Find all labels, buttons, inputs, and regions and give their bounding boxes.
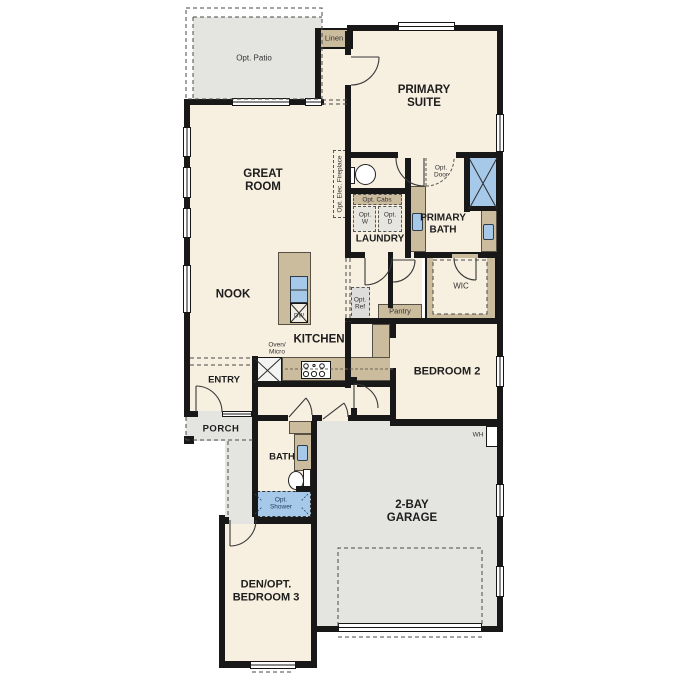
floor-plan: Opt. Patio Linen PRIMARY SUITE GREAT ROO… bbox=[0, 0, 687, 687]
wc-door-arc bbox=[396, 158, 424, 186]
bath-door-leaf bbox=[289, 398, 306, 417]
label-oven-micro: Oven/ Micro bbox=[261, 342, 293, 357]
label-opt-w: Opt. W bbox=[357, 212, 373, 227]
laundry-door-arc bbox=[365, 258, 392, 285]
label-porch: PORCH bbox=[203, 425, 240, 436]
label-dw: DW bbox=[294, 314, 304, 321]
label-opt-cabs: Opt. Cabs bbox=[362, 196, 391, 203]
oven-micro-x bbox=[254, 358, 281, 383]
label-primary-suite: PRIMARY SUITE bbox=[380, 84, 468, 110]
entry-opening-dashed bbox=[190, 358, 252, 365]
kitchen-opening-dashed bbox=[346, 258, 350, 322]
label-nook: NOOK bbox=[216, 288, 251, 301]
label-wic: WIC bbox=[453, 281, 469, 290]
label-wh: WH bbox=[473, 431, 484, 438]
suite-door-arc bbox=[351, 57, 379, 85]
label-opt-shower: Opt. Shower bbox=[264, 497, 298, 512]
label-bedroom-2: BEDROOM 2 bbox=[414, 366, 481, 379]
label-linen: Linen bbox=[325, 35, 343, 44]
den-door-arc bbox=[230, 520, 256, 546]
corridor-opening-dashed bbox=[322, 100, 347, 104]
label-den: DEN/OPT. BEDROOM 3 bbox=[214, 578, 319, 603]
garage-entry-door-arc bbox=[344, 403, 348, 417]
label-opt-ref: Opt. Ref bbox=[351, 297, 369, 312]
label-opt-d: Opt. D bbox=[382, 212, 398, 227]
front-door-arc bbox=[196, 386, 222, 412]
label-pantry: Pantry bbox=[389, 308, 411, 317]
label-primary-bath: PRIMARY BATH bbox=[411, 213, 475, 236]
label-bath: BATH bbox=[269, 453, 295, 464]
label-great-room: GREAT ROOM bbox=[233, 168, 293, 194]
shower-x bbox=[469, 158, 497, 209]
label-opt-patio: Opt. Patio bbox=[236, 53, 272, 62]
label-garage: 2-BAY GARAGE bbox=[381, 499, 443, 525]
label-laundry: LAUNDRY bbox=[356, 233, 405, 245]
label-kitchen: KITCHEN bbox=[293, 333, 344, 346]
wic-door-arc bbox=[454, 258, 476, 280]
bath-door-arc bbox=[306, 398, 312, 415]
label-opt-elec-fireplace: Opt. Elec. Fireplace bbox=[336, 155, 343, 212]
label-opt-door: Opt. Door bbox=[428, 165, 454, 180]
label-entry: ENTRY bbox=[208, 376, 240, 387]
garage-stall-dashed bbox=[338, 548, 482, 626]
cooktop-burners bbox=[303, 364, 324, 377]
garage-entry-door-leaf bbox=[323, 403, 344, 419]
hall-door-arc bbox=[354, 384, 378, 408]
pantry-door-arc bbox=[393, 260, 415, 282]
